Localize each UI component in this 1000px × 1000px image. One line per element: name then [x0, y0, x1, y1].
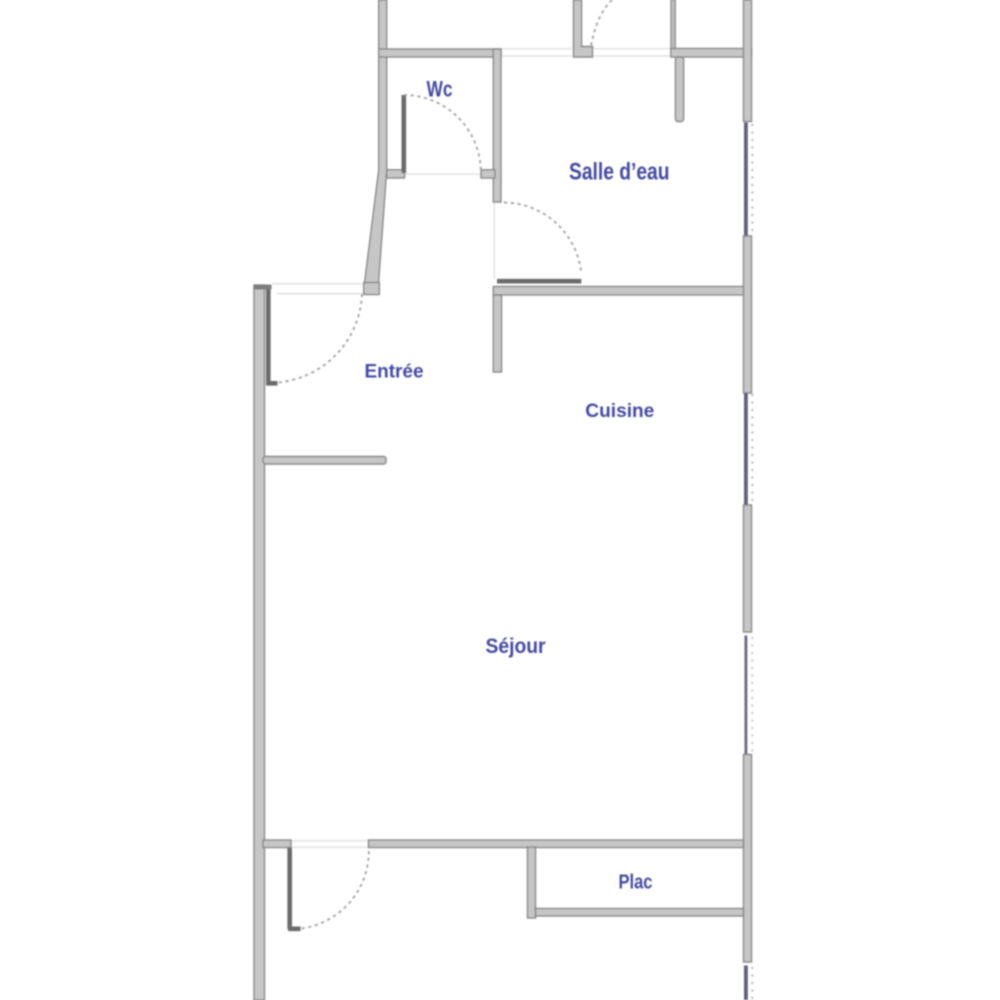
- svg-text:Cuisine: Cuisine: [585, 400, 654, 422]
- svg-text:Séjour: Séjour: [486, 634, 547, 658]
- svg-text:Salle d’eau: Salle d’eau: [569, 159, 670, 186]
- svg-text:Entrée: Entrée: [365, 361, 424, 383]
- svg-text:Wc: Wc: [427, 77, 453, 102]
- svg-text:Plac: Plac: [619, 872, 653, 894]
